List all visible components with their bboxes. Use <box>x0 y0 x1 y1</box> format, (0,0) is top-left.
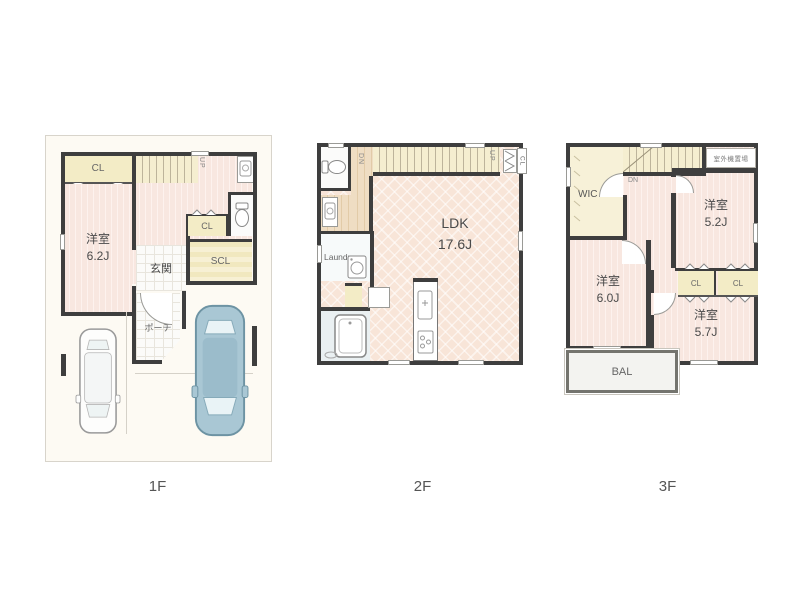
closet-front-line <box>678 295 758 297</box>
bifold-door-marks <box>684 296 710 303</box>
floor-plan-1f: UP CL 洋室 6.2J CL SCL <box>45 135 272 462</box>
storage-cabinet <box>345 283 362 307</box>
stairs-dn-label: DN <box>628 177 638 184</box>
stairs-up-label: UP <box>488 150 495 162</box>
entrance-genkan: 玄関 <box>136 245 186 291</box>
hanger-marks <box>572 151 582 231</box>
wall-segment <box>132 286 136 364</box>
washbasin-icon <box>322 197 338 227</box>
room-size: 5.2J <box>705 215 728 229</box>
parking-line <box>126 312 127 434</box>
floor-label-3f: 3F <box>555 478 780 495</box>
wall-segment <box>186 281 257 285</box>
wall-segment <box>61 312 136 316</box>
ldk-name: LDK <box>441 215 468 231</box>
bathroom <box>321 311 370 361</box>
closet-cl-mid: CL <box>186 214 228 236</box>
bifold-door-marks <box>191 209 217 216</box>
wall-segment <box>61 152 257 156</box>
porch-label: ポーチ <box>136 321 180 334</box>
balcony: BAL <box>566 350 678 393</box>
blue-car-illustration <box>191 303 249 438</box>
floor-plan-2f: UP CL DN Laundry <box>310 135 535 460</box>
closet-cl-2: CL <box>718 271 758 295</box>
window <box>458 360 484 365</box>
closet-cl: CL <box>517 148 527 174</box>
room-name: 洋室 <box>704 198 728 212</box>
bifold-door-marks <box>684 263 710 270</box>
window <box>317 245 322 263</box>
window <box>690 360 718 365</box>
closet-label: CL <box>519 156 526 166</box>
room-size: 6.0J <box>597 291 620 305</box>
wall-segment <box>132 152 136 250</box>
kitchen-sink-icon <box>417 290 433 320</box>
window <box>640 143 662 148</box>
ldk-label: LDK 17.6J <box>395 213 515 255</box>
floor-label-2f: 2F <box>310 478 535 495</box>
wall-segment <box>370 231 374 287</box>
carport-wall-stub <box>61 354 66 376</box>
stair-winder-line <box>623 147 653 172</box>
wall-segment <box>253 152 257 285</box>
window <box>328 143 344 148</box>
wall-segment <box>132 360 162 364</box>
outdoor-unit-area: 室外機置場 <box>706 148 756 168</box>
room-western-5-2j-label: 洋室 5.2J <box>676 197 756 231</box>
closet-cl-1: CL <box>678 271 716 295</box>
window <box>566 167 571 187</box>
floor-plan-3f: WIC DN 室外機置場 洋室 5.2J 洋室 6.0J <box>555 135 780 460</box>
wall-segment <box>373 172 500 176</box>
stairs-dn-label: DN <box>357 153 364 165</box>
room-name: 洋室 <box>694 308 718 322</box>
balcony-label: BAL <box>612 366 633 378</box>
carport-wall-stub <box>252 326 257 366</box>
room-size: 5.7J <box>695 325 718 339</box>
wall-segment <box>182 291 186 329</box>
outdoor-unit-label: 室外機置場 <box>714 153 749 163</box>
floor-plan-page: UP CL 洋室 6.2J CL SCL <box>0 0 800 600</box>
room-name: 洋室 <box>86 232 110 246</box>
window <box>753 223 758 243</box>
wall-segment <box>672 168 758 173</box>
bifold-door-marks <box>725 263 751 270</box>
staircase <box>136 155 198 183</box>
kitchen-island <box>413 281 438 361</box>
staircase <box>373 147 500 172</box>
toilet-room <box>321 147 351 191</box>
shoe-closet-scl: SCL <box>189 239 252 281</box>
toilet-icon <box>321 158 349 176</box>
window <box>388 360 410 365</box>
closet-label: CL <box>92 163 105 174</box>
room-western-5-7j-label: 洋室 5.7J <box>654 307 758 341</box>
wall-segment <box>650 270 654 293</box>
ldk-size: 17.6J <box>438 236 472 252</box>
wall-segment <box>321 231 370 234</box>
floor-label-1f: 1F <box>45 478 270 495</box>
wall-segment <box>568 236 623 240</box>
room-size: 6.2J <box>87 249 110 263</box>
window <box>465 143 485 148</box>
toilet-icon <box>233 202 251 230</box>
laundry-room: Laundry <box>321 234 370 281</box>
stairs-up-label: UP <box>198 157 205 169</box>
stove-icon <box>417 330 434 354</box>
window <box>60 234 65 250</box>
closet-label: CL <box>691 279 701 288</box>
bifold-door-marks <box>725 296 751 303</box>
closet-cl-top: CL <box>64 155 132 184</box>
drain-icon <box>324 351 338 359</box>
folding-door-closet <box>503 149 517 173</box>
room-western-6-2j: 洋室 6.2J <box>64 184 132 312</box>
bathtub-icon <box>334 314 367 358</box>
wall-segment <box>186 236 190 284</box>
genkan-label: 玄関 <box>150 260 172 276</box>
wall-segment <box>369 176 373 231</box>
closet-label: CL <box>733 279 743 288</box>
scl-label: SCL <box>211 256 230 267</box>
counter <box>368 287 390 308</box>
toilet-room <box>228 192 253 236</box>
window <box>191 151 209 156</box>
washbasin-icon <box>237 156 254 183</box>
room-name: 洋室 <box>596 274 620 288</box>
wall-segment <box>623 195 627 240</box>
folding-door-icon <box>504 150 516 172</box>
washing-machine-icon <box>347 255 367 279</box>
window <box>518 231 523 251</box>
white-car-illustration <box>74 326 122 436</box>
room-western-6-0j-label: 洋室 6.0J <box>570 273 646 307</box>
kitchen-counter-edge <box>413 278 438 282</box>
closet-label: CL <box>201 221 213 231</box>
